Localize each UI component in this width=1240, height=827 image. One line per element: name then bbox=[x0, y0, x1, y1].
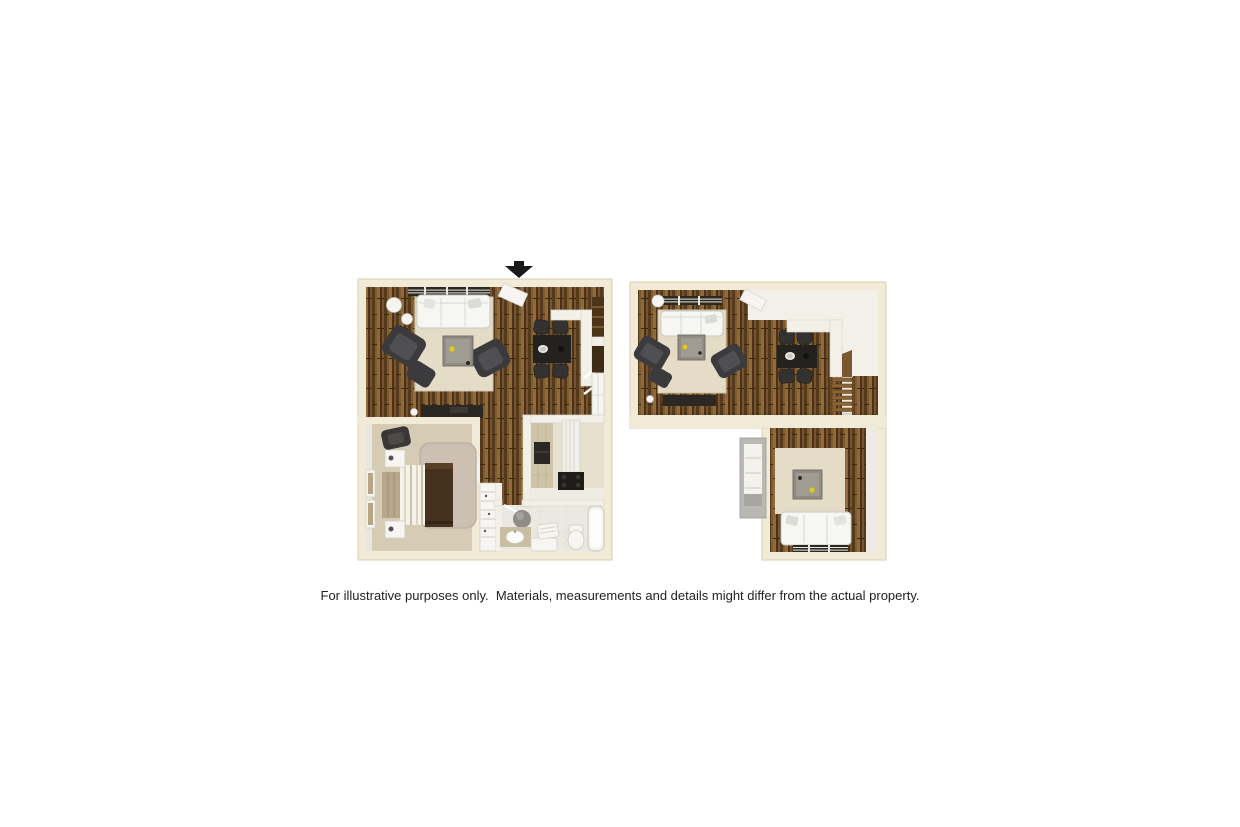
sofa bbox=[417, 295, 490, 328]
towel bbox=[537, 523, 559, 540]
toilet bbox=[568, 525, 584, 550]
closet-shelves bbox=[480, 483, 502, 551]
stove bbox=[558, 472, 584, 490]
tv-stand bbox=[411, 405, 484, 418]
disclaimer-text: For illustrative purposes only. Material… bbox=[0, 588, 1240, 603]
floorplan-right bbox=[630, 282, 886, 560]
entrance-arrow-icon bbox=[505, 261, 533, 278]
bath-stool bbox=[531, 538, 557, 551]
floorplan-page: For illustrative purposes only. Material… bbox=[0, 0, 1240, 827]
floorplan-left bbox=[358, 279, 612, 560]
vanity-sink bbox=[500, 527, 531, 547]
den-coffee-table bbox=[793, 470, 822, 499]
bathtub bbox=[588, 506, 604, 551]
round-side-table bbox=[652, 295, 664, 307]
den bbox=[770, 428, 878, 552]
dining-table bbox=[777, 329, 817, 383]
bed bbox=[382, 463, 453, 527]
bedroom-wall bbox=[358, 417, 480, 424]
coffee-table bbox=[678, 335, 705, 360]
floorplan-image bbox=[0, 0, 1240, 827]
sofa bbox=[661, 311, 723, 336]
utility-closet-doors bbox=[592, 373, 604, 417]
wall-oven bbox=[534, 442, 550, 464]
refrigerator bbox=[562, 420, 580, 472]
den-sofa bbox=[781, 512, 851, 545]
window-blinds-icon bbox=[793, 545, 848, 552]
den-closet bbox=[740, 438, 766, 518]
window-blinds-icon bbox=[663, 296, 722, 305]
coffee-table bbox=[443, 336, 473, 366]
den-top-wall bbox=[630, 415, 886, 428]
